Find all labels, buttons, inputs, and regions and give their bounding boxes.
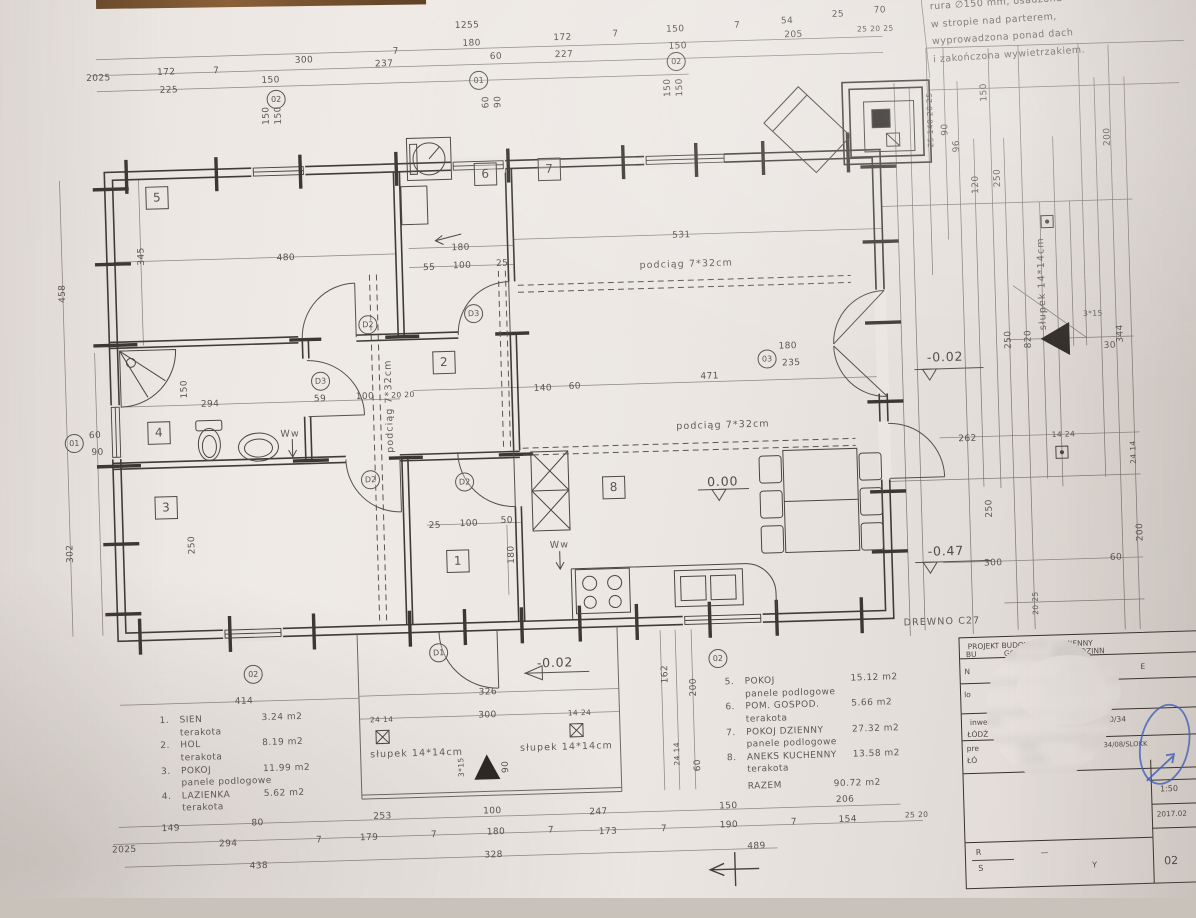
dim-label: 190 bbox=[720, 820, 739, 831]
dim-label: 200 bbox=[1135, 523, 1146, 542]
designer-label: pre bbox=[967, 744, 980, 753]
dim-label: 237 bbox=[375, 59, 394, 70]
dim-label: 179 bbox=[360, 833, 379, 844]
annotation-label: Ww bbox=[280, 428, 300, 440]
legend-item-area: 5.66 m2 bbox=[851, 698, 892, 709]
rys-label-s: S bbox=[978, 864, 983, 873]
legend-item-no: 2. bbox=[160, 741, 180, 752]
dim-label: 200 bbox=[689, 678, 700, 697]
dim-label: 150 bbox=[719, 801, 738, 812]
dim-label: 172 bbox=[157, 67, 176, 78]
dim-label: 262 bbox=[958, 434, 977, 445]
kitchen-sink bbox=[674, 569, 743, 607]
legend-item-name: SIEN bbox=[179, 713, 261, 725]
legend-item-area: 27.32 m2 bbox=[852, 723, 899, 734]
toilet bbox=[196, 420, 222, 431]
dim-label: 300 bbox=[295, 55, 314, 66]
dim-label: 180 bbox=[778, 341, 797, 352]
dim-label: 162 bbox=[660, 665, 671, 684]
dim-label: 14 24 bbox=[568, 708, 592, 718]
dim-label: 172 bbox=[553, 33, 572, 44]
dim-label: 20 20 bbox=[391, 390, 415, 400]
dim-label: 25 20 25 bbox=[857, 24, 894, 34]
dim-label: 150 bbox=[663, 78, 674, 97]
dim-label: 294 bbox=[201, 399, 220, 410]
dim-label: 25 20 bbox=[905, 810, 929, 820]
room-number: 1 bbox=[446, 549, 470, 573]
legend-item-name: LAZIENKA bbox=[182, 789, 264, 801]
dim-label: 7 bbox=[734, 21, 740, 31]
dim-label: 200 bbox=[1102, 127, 1113, 146]
dim-label: 7 bbox=[548, 825, 554, 835]
dim-label: 100 bbox=[356, 392, 375, 403]
dim-label: 250 bbox=[993, 169, 1004, 188]
dim-label: 294 bbox=[219, 839, 238, 850]
dim-label: -0.02 bbox=[537, 654, 574, 670]
dim-label: 180 bbox=[506, 545, 517, 564]
dim-label: 480 bbox=[277, 253, 296, 264]
dim-label: 300 bbox=[984, 558, 1003, 569]
dim-label: 96 bbox=[952, 140, 962, 153]
walls bbox=[102, 80, 945, 641]
dim-label: 326 bbox=[479, 687, 498, 698]
dim-label: 7 bbox=[661, 824, 667, 834]
legend-item-no: 8. bbox=[727, 753, 747, 764]
legend-item-area: 11.99 m2 bbox=[263, 762, 310, 773]
room-number: 2 bbox=[432, 351, 456, 375]
dim-label: 250 bbox=[1003, 330, 1014, 349]
dim-label: 820 bbox=[1023, 330, 1034, 349]
dim-label: 7 bbox=[612, 29, 618, 39]
investor-city: ŁÓDŹ bbox=[967, 730, 988, 740]
legend-item-no: 5. bbox=[725, 677, 745, 688]
dim-label: 60 bbox=[481, 96, 491, 109]
dim-label: 344 bbox=[1115, 324, 1126, 343]
dim-label: 531 bbox=[672, 230, 691, 241]
dim-label: -0.02 bbox=[927, 349, 964, 365]
legend-item-name: HOL bbox=[180, 739, 262, 751]
dim-label: 25 bbox=[832, 10, 845, 20]
dim-label: 180 bbox=[487, 827, 506, 838]
field-label: lo bbox=[964, 690, 971, 699]
dim-label: 90 bbox=[940, 123, 950, 136]
stove bbox=[575, 568, 630, 614]
dim-label: 205 bbox=[784, 30, 803, 41]
dim-label: 250 bbox=[187, 536, 198, 555]
dim-label: 25 bbox=[496, 259, 509, 269]
dim-label: 54 bbox=[781, 16, 794, 26]
dim-label: 253 bbox=[373, 811, 392, 822]
dim-label: 70 bbox=[874, 5, 887, 15]
dim-label: 300 bbox=[478, 710, 497, 721]
dim-label: 24 14 bbox=[672, 742, 682, 766]
legend-item-no: 1. bbox=[159, 716, 179, 727]
scanned-floorplan-page: 1255300718054257020251727237601727150720… bbox=[0, 0, 1196, 898]
windows bbox=[104, 153, 761, 641]
dim-label: -0.47 bbox=[927, 543, 964, 559]
dim-label: 20 25 bbox=[1031, 591, 1041, 615]
dim-label: 150 bbox=[261, 106, 272, 125]
room-number: 8 bbox=[602, 476, 626, 500]
dim-label: 50 bbox=[500, 516, 513, 526]
dim-label: 25 140 20 25 bbox=[925, 92, 936, 147]
dim-label: 206 bbox=[836, 795, 855, 806]
room-number: 5 bbox=[145, 186, 169, 210]
dim-label: 120 bbox=[971, 175, 982, 194]
field-label: N bbox=[964, 667, 970, 676]
pen-annotation bbox=[1119, 699, 1196, 802]
dim-label: 150 bbox=[979, 83, 990, 102]
dim-label: 154 bbox=[838, 814, 857, 825]
log-end-ticks bbox=[88, 131, 911, 656]
dim-label: 7 bbox=[316, 835, 322, 845]
dim-label: 3*15 bbox=[1083, 308, 1103, 318]
dim-label: 235 bbox=[782, 358, 801, 369]
room-number: 6 bbox=[474, 162, 498, 186]
dim-label: 2025 bbox=[112, 845, 137, 856]
legend-item-no: 6. bbox=[725, 702, 745, 713]
legend-item-name: POKOJ bbox=[181, 764, 263, 776]
beam-dashed-lines bbox=[369, 260, 860, 624]
dim-label: 7 bbox=[393, 47, 399, 57]
dim-label: 14 24 bbox=[1052, 429, 1076, 439]
dim-label: 100 bbox=[483, 806, 502, 817]
dim-label: 345 bbox=[136, 247, 147, 266]
dim-label: 458 bbox=[58, 284, 69, 303]
dim-label: 100 bbox=[453, 261, 472, 272]
dim-label: 60 bbox=[569, 381, 582, 391]
dim-label: 90 bbox=[493, 96, 503, 109]
dim-label: 471 bbox=[700, 371, 719, 382]
dim-label: 180 bbox=[451, 243, 470, 254]
legend-item-no: 3. bbox=[161, 766, 181, 777]
legend-item-no: 7. bbox=[726, 727, 746, 738]
dim-label: 59 bbox=[314, 394, 327, 404]
sheet-number: 02 bbox=[1164, 854, 1178, 867]
dim-label: 60 bbox=[490, 52, 503, 62]
dim-label: 7 bbox=[431, 830, 437, 840]
dim-label: 247 bbox=[589, 807, 608, 818]
wall-gaps bbox=[100, 145, 896, 645]
title-block-line bbox=[972, 859, 1014, 861]
legend-item-area: 8.19 m2 bbox=[262, 737, 303, 748]
dim-label: 0.00 bbox=[707, 473, 738, 489]
dim-label: 7 bbox=[791, 817, 797, 827]
dim-label: 30 bbox=[1104, 341, 1117, 351]
dim-label: 328 bbox=[484, 850, 503, 861]
dim-label: 150 bbox=[668, 41, 687, 52]
pen-arrow bbox=[1146, 754, 1175, 781]
legend-item-area: 3.24 m2 bbox=[261, 712, 302, 723]
dim-label: 60 bbox=[89, 431, 102, 441]
dim-label: 414 bbox=[235, 696, 254, 707]
dim-label: 149 bbox=[161, 824, 180, 835]
room-legend-right: RAZEM 90.72 m2 5.POKOJ15.12 m2panele pod… bbox=[724, 670, 942, 777]
dim-label: 150 bbox=[675, 78, 686, 97]
dim-label: 3*15 bbox=[456, 757, 466, 777]
title-block-line bbox=[1152, 826, 1196, 829]
dim-label: 60 bbox=[1110, 552, 1123, 562]
designer-city: ŁÓ bbox=[967, 756, 977, 765]
dim-label: 150 bbox=[261, 75, 280, 86]
project-subtitle-frag: BU bbox=[966, 650, 977, 659]
dim-label: 438 bbox=[250, 861, 269, 872]
rys-dash: — bbox=[1041, 848, 1049, 857]
date-value: 2017.02 bbox=[1157, 809, 1187, 819]
dim-label: 25 bbox=[429, 521, 442, 531]
legend-total-value: 90.72 m2 bbox=[834, 778, 881, 789]
title-block-line bbox=[1151, 802, 1196, 805]
annotation-label: DREWNO C27 bbox=[903, 615, 980, 628]
dim-label: 180 bbox=[462, 38, 481, 49]
dim-label: 227 bbox=[555, 50, 574, 61]
dim-label: 24 14 bbox=[1128, 440, 1138, 464]
dim-label: 100 bbox=[459, 519, 478, 530]
rys-label-y: Y bbox=[1092, 860, 1097, 869]
north-entry-arrow bbox=[710, 851, 760, 886]
dim-label: 90 bbox=[501, 761, 511, 774]
room-number: 7 bbox=[538, 157, 562, 181]
dim-label: 225 bbox=[160, 85, 179, 96]
dim-label: 140 bbox=[534, 383, 553, 394]
dim-label: 2025 bbox=[86, 73, 111, 84]
dim-label: 302 bbox=[65, 544, 76, 563]
dim-label: 60 bbox=[693, 759, 703, 772]
rys-label-r: R bbox=[976, 848, 982, 857]
dim-label: 489 bbox=[747, 841, 766, 852]
title-block-line bbox=[966, 837, 1153, 844]
legend-item-area: 5.62 m2 bbox=[264, 788, 305, 799]
room-number: 3 bbox=[154, 496, 178, 520]
legend-item-no: 4. bbox=[162, 791, 182, 802]
dim-label: 55 bbox=[423, 263, 436, 273]
legend-item-area: 13.58 m2 bbox=[853, 748, 900, 759]
dim-label: 250 bbox=[984, 499, 995, 518]
legend-item-area: 15.12 m2 bbox=[850, 673, 897, 684]
dim-label: 7 bbox=[213, 66, 219, 76]
dim-label: 173 bbox=[599, 827, 618, 838]
dim-label: 90 bbox=[91, 448, 104, 458]
dim-label: 150 bbox=[666, 24, 685, 35]
dim-label: 1255 bbox=[455, 20, 480, 31]
terrace-lines bbox=[877, 40, 1196, 636]
drawing-scene: 1255300718054257020251727237601727150720… bbox=[0, 0, 1196, 916]
dim-label: 80 bbox=[251, 818, 264, 828]
stairs-triangle bbox=[474, 754, 501, 780]
water-heater bbox=[401, 186, 428, 225]
elevation-markers bbox=[516, 367, 995, 680]
location-frag: E bbox=[1140, 662, 1145, 671]
dim-label: 150 bbox=[179, 380, 190, 399]
room-legend-left: 1.SIEN3.24 m2terakota2.HOL8.19 m2terakot… bbox=[159, 707, 432, 816]
title-block: PROJEKT BUDOWLANY ZAMIENNY BU GO DNORODZ… bbox=[958, 630, 1196, 889]
room-number: 4 bbox=[147, 421, 171, 445]
shower bbox=[120, 349, 178, 407]
annotation-label: Ww bbox=[550, 539, 570, 551]
